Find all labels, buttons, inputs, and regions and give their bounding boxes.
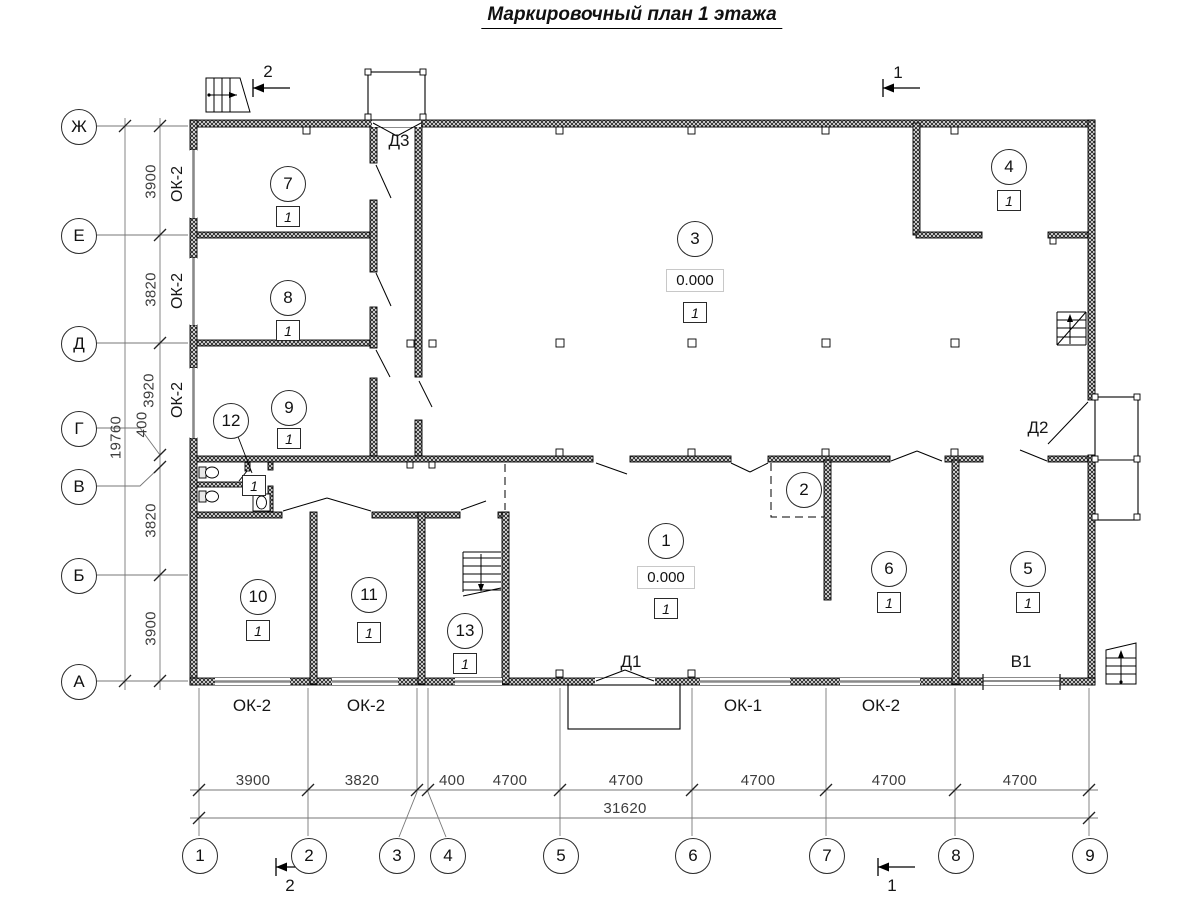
room-6-category: 1 bbox=[877, 592, 901, 613]
section-arrows bbox=[253, 79, 920, 876]
dashed-boundaries bbox=[505, 463, 824, 517]
axis-row-v: В bbox=[61, 469, 97, 505]
room-5-category: 1 bbox=[1016, 592, 1040, 613]
floor-plan: .w{fill:url(#hatch);stroke:#000;stroke-w… bbox=[0, 0, 1200, 900]
room-9-number: 9 bbox=[271, 390, 307, 426]
room-6-number: 6 bbox=[871, 551, 907, 587]
axis-col-8: 8 bbox=[938, 838, 974, 874]
dim-bottom-3-4: 400 bbox=[427, 772, 477, 789]
gate-mark-v1: В1 bbox=[1011, 652, 1032, 672]
dim-left-v-b: 3820 bbox=[143, 491, 160, 551]
room-5-number: 5 bbox=[1010, 551, 1046, 587]
room-3-elevation: 0.000 bbox=[666, 269, 724, 292]
room-8-number: 8 bbox=[270, 280, 306, 316]
dim-left-e-d: 3820 bbox=[143, 260, 160, 320]
dim-bottom-5-6: 4700 bbox=[596, 772, 656, 789]
axis-row-zh: Ж bbox=[61, 109, 97, 145]
interior-stair-right bbox=[1057, 312, 1086, 345]
dim-left-total: 19760 bbox=[108, 403, 125, 473]
stair-room-13 bbox=[463, 552, 501, 596]
window-mark-ok2-left-2: ОК-2 bbox=[169, 265, 187, 317]
door-mark-d3: Д3 bbox=[389, 131, 410, 151]
axis-row-g: Г bbox=[61, 411, 97, 447]
walls bbox=[190, 120, 1095, 685]
plan-linework: .w{fill:url(#hatch);stroke:#000;stroke-w… bbox=[0, 0, 1200, 900]
room-9-category: 1 bbox=[277, 428, 301, 449]
room-1-category: 1 bbox=[654, 598, 678, 619]
axis-col-1: 1 bbox=[182, 838, 218, 874]
room-13-number: 13 bbox=[447, 613, 483, 649]
dim-bottom-1-2: 3900 bbox=[223, 772, 283, 789]
exterior-stair-bottom-right bbox=[1106, 643, 1136, 684]
room-8-category: 1 bbox=[276, 320, 300, 341]
room-1-elevation: 0.000 bbox=[637, 566, 695, 589]
axis-row-b: Б bbox=[61, 558, 97, 594]
dim-bottom-8-9: 4700 bbox=[990, 772, 1050, 789]
room-11-number: 11 bbox=[351, 577, 387, 613]
window-openings bbox=[190, 120, 1060, 690]
door-mark-d1: Д1 bbox=[621, 652, 642, 672]
axis-col-3: 3 bbox=[379, 838, 415, 874]
section-2-bottom-label: 2 bbox=[285, 876, 294, 896]
room-4-number: 4 bbox=[991, 149, 1027, 185]
room-12-number: 12 bbox=[213, 403, 249, 439]
window-mark-ok2-left-3: ОК-2 bbox=[169, 374, 187, 426]
axis-row-e: Е bbox=[61, 218, 97, 254]
axis-col-2: 2 bbox=[291, 838, 327, 874]
dim-bottom-total: 31620 bbox=[595, 800, 655, 817]
room-12-category: 1 bbox=[242, 475, 266, 496]
room-1-number: 1 bbox=[648, 523, 684, 559]
axis-row-d: Д bbox=[61, 326, 97, 362]
section-1-top-label: 1 bbox=[893, 63, 902, 83]
window-mark-ok2-bottom-3: ОК-2 bbox=[862, 696, 900, 716]
room-13-category: 1 bbox=[453, 653, 477, 674]
axis-col-7: 7 bbox=[809, 838, 845, 874]
dim-left-g-v: 400 bbox=[134, 395, 151, 455]
door-mark-d2: Д2 bbox=[1028, 418, 1049, 438]
room-3-number: 3 bbox=[677, 221, 713, 257]
axis-col-5: 5 bbox=[543, 838, 579, 874]
dim-bottom-4-5: 4700 bbox=[485, 772, 535, 789]
dim-bottom-2-3: 3820 bbox=[332, 772, 392, 789]
axis-col-9: 9 bbox=[1072, 838, 1108, 874]
dim-bottom-6-7: 4700 bbox=[728, 772, 788, 789]
axis-col-4: 4 bbox=[430, 838, 466, 874]
room-10-number: 10 bbox=[240, 579, 276, 615]
exterior-stair-top-left bbox=[206, 78, 250, 112]
room-12-leader bbox=[237, 434, 252, 473]
room-7-category: 1 bbox=[276, 206, 300, 227]
room-4-category: 1 bbox=[997, 190, 1021, 211]
window-mark-ok2-left-1: ОК-2 bbox=[169, 158, 187, 210]
room-3-category: 1 bbox=[683, 302, 707, 323]
drawing-title: Маркировочный план 1 этажа bbox=[481, 4, 782, 29]
room-10-category: 1 bbox=[246, 620, 270, 641]
section-1-bottom-label: 1 bbox=[887, 876, 896, 896]
axis-row-a: А bbox=[61, 664, 97, 700]
axis-col-6: 6 bbox=[675, 838, 711, 874]
section-2-top-label: 2 bbox=[263, 62, 272, 82]
room-11-category: 1 bbox=[357, 622, 381, 643]
dim-bottom-7-8: 4700 bbox=[859, 772, 919, 789]
dim-left-zh-e: 3900 bbox=[143, 152, 160, 212]
window-mark-ok2-bottom-1: ОК-2 bbox=[233, 696, 271, 716]
room-7-number: 7 bbox=[270, 166, 306, 202]
window-mark-ok2-bottom-2: ОК-2 bbox=[347, 696, 385, 716]
window-mark-ok1-bottom: ОК-1 bbox=[724, 696, 762, 716]
dim-left-b-a: 3900 bbox=[143, 599, 160, 659]
room-2-number: 2 bbox=[786, 472, 822, 508]
